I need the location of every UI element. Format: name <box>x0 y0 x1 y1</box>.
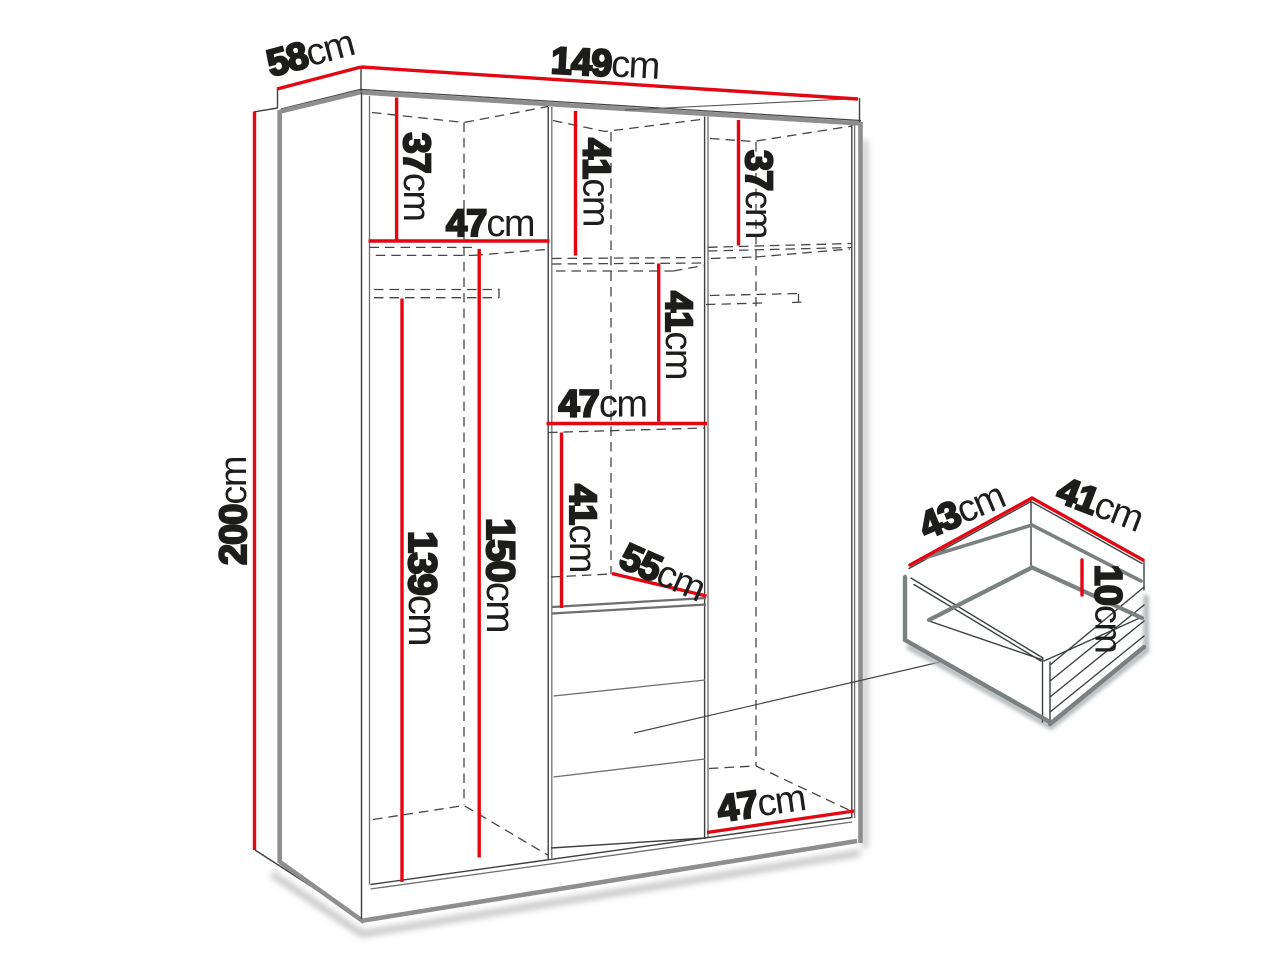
svg-text:41cm: 41cm <box>575 138 617 226</box>
svg-text:200cm: 200cm <box>213 457 255 565</box>
svg-text:47cm: 47cm <box>559 384 647 426</box>
svg-text:10cm: 10cm <box>1087 565 1129 653</box>
svg-text:41cm: 41cm <box>657 291 699 379</box>
svg-text:149cm: 149cm <box>550 40 660 88</box>
svg-text:37cm: 37cm <box>737 150 779 238</box>
svg-text:150cm: 150cm <box>478 518 522 632</box>
svg-text:37cm: 37cm <box>395 133 437 221</box>
svg-text:47cm: 47cm <box>446 203 534 245</box>
svg-text:139cm: 139cm <box>400 531 444 645</box>
svg-text:41cm: 41cm <box>561 484 603 572</box>
